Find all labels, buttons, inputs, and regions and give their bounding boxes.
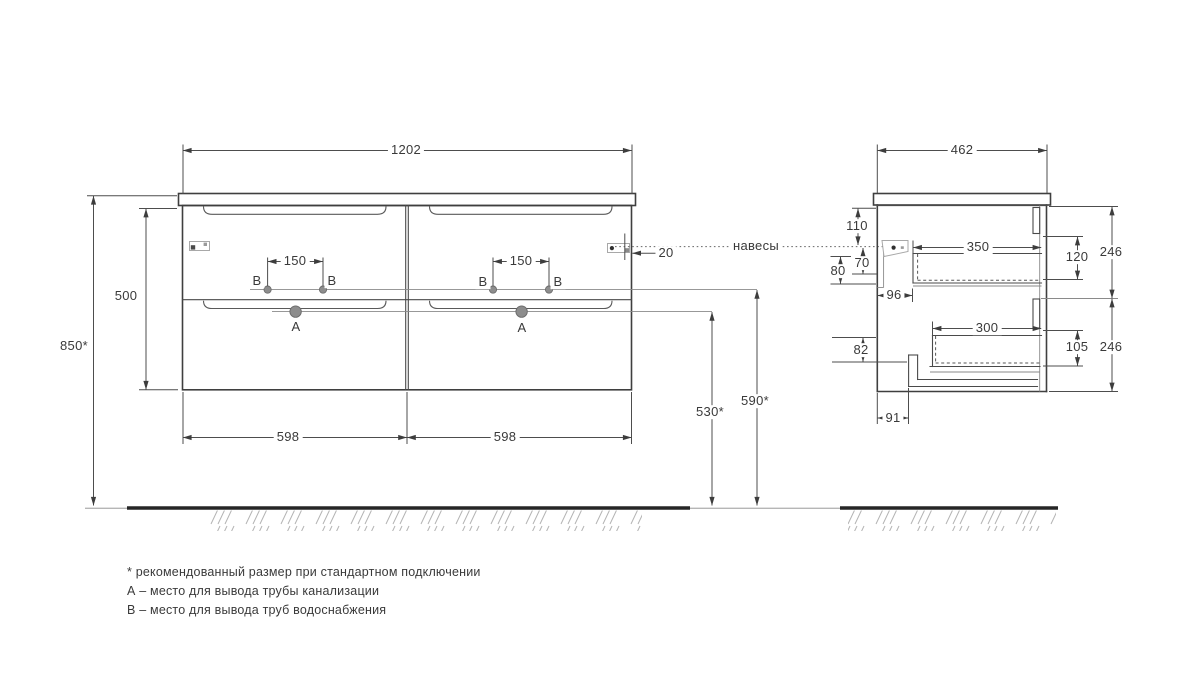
dim-upper-drawer-height: 120 <box>1063 250 1092 264</box>
dim-drain-height: 530* <box>693 405 727 419</box>
footnote-water: В – место для вывода труб водоснабжения <box>127 604 386 618</box>
floor-hatch <box>848 511 1056 532</box>
dim-hanger-offset: 20 <box>655 246 676 260</box>
water-hole-label: В <box>551 275 566 289</box>
dim-hole-spacing-right: 150 <box>507 254 536 268</box>
dim-overall-depth: 462 <box>948 143 977 157</box>
dim-top-to-hanger: 110 <box>843 219 871 233</box>
lower-drawer-section <box>909 336 1042 387</box>
dim-front-rail-height: 80 <box>827 264 848 278</box>
dim-lower-section-height: 246 <box>1097 340 1126 354</box>
water-hole-label: В <box>250 274 265 288</box>
hangers-label: навесы <box>730 239 782 253</box>
floor-line <box>85 508 1058 531</box>
drain-hole <box>290 306 301 317</box>
dim-overall-width: 1202 <box>388 143 424 157</box>
dim-hanger-drop: 70 <box>851 256 872 270</box>
water-hole-label: В <box>325 274 340 288</box>
dim-hole-spacing-left: 150 <box>281 254 310 268</box>
dim-recess-depth: 91 <box>882 411 903 425</box>
upper-drawer-section <box>913 254 1042 287</box>
dim-drawer-width-right: 598 <box>491 430 520 444</box>
side-view-dimensions <box>831 145 1119 425</box>
hanger-plate-right <box>608 244 630 253</box>
dim-water-height: 590* <box>738 394 772 408</box>
side-view-cabinet <box>874 194 1119 392</box>
drain-hole <box>516 306 527 317</box>
drain-hole-label: А <box>289 320 304 334</box>
dim-front-to-drawer: 96 <box>883 288 904 302</box>
dim-lower-drawer-depth: 300 <box>973 321 1002 335</box>
front-view-dimensions <box>87 145 757 506</box>
drain-hole-label: А <box>515 321 530 335</box>
dim-drawer-width-left: 598 <box>274 430 303 444</box>
front-view-cabinet <box>179 194 758 390</box>
water-hole <box>264 286 271 293</box>
dim-upper-section-height: 246 <box>1097 245 1126 259</box>
dim-cabinet-height: 500 <box>112 289 141 303</box>
dim-upper-drawer-depth: 350 <box>964 240 993 254</box>
dim-lower-drawer-height: 105 <box>1063 340 1092 354</box>
footnote-recommended-size: * рекомендованный размер при стандартном… <box>127 566 481 580</box>
hanger-bracket-side <box>882 241 908 257</box>
floor-hatch <box>205 511 642 532</box>
water-hole-label: В <box>476 275 491 289</box>
technical-drawing-page: 1202 500 850* 150 150 598 598 20 530* 59… <box>0 0 1200 675</box>
dim-install-height: 850* <box>57 339 91 353</box>
hanger-plate-left <box>190 242 210 251</box>
footnote-drain: А – место для вывода трубы канализации <box>127 585 379 599</box>
dim-recess-height: 82 <box>850 343 871 357</box>
